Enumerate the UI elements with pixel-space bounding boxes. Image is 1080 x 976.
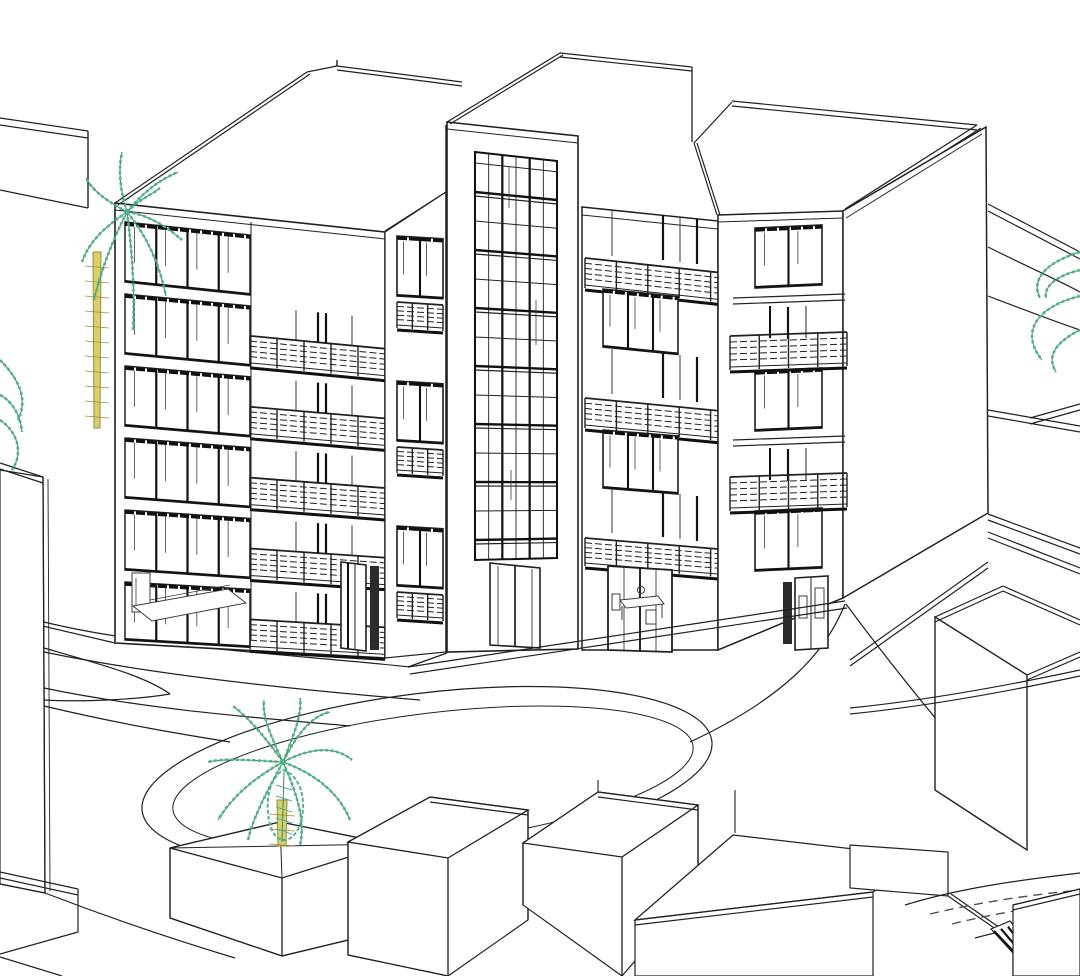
palm-left-edge xyxy=(0,360,22,470)
right-window xyxy=(755,508,822,571)
window-row xyxy=(125,438,250,508)
foreground-box-1 xyxy=(348,797,528,976)
background-building-top-left xyxy=(0,118,88,208)
window-row xyxy=(125,510,250,579)
street xyxy=(850,845,1080,976)
background-building-right xyxy=(988,204,1080,432)
main-building xyxy=(115,53,988,659)
strip-window xyxy=(397,526,443,589)
foreground-box-right xyxy=(935,586,1080,850)
tower-entrance-door xyxy=(490,563,540,648)
right-window xyxy=(755,225,822,288)
palm-right-edge xyxy=(1032,252,1080,372)
right-block xyxy=(694,101,988,650)
window-row xyxy=(125,366,250,437)
window-row xyxy=(125,294,250,366)
cad-3d-viewport xyxy=(0,0,1080,976)
middle-window-band xyxy=(603,289,678,355)
curtain-wall-glazing xyxy=(475,152,557,560)
window-row xyxy=(125,222,250,295)
foreground-box-bottom-right xyxy=(1013,889,1080,976)
strip-window xyxy=(397,381,443,444)
recessed-strip xyxy=(385,125,446,658)
architectural-3d-view xyxy=(0,0,1080,976)
middle-window-band xyxy=(603,430,678,494)
right-window xyxy=(755,368,822,431)
strip-window xyxy=(397,236,443,299)
